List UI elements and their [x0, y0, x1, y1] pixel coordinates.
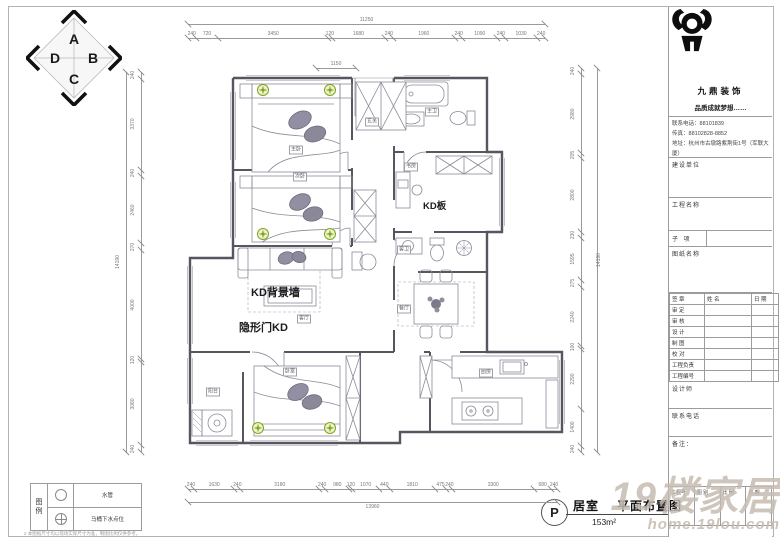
- room-tag: 次卧: [293, 173, 307, 182]
- plan-label: KD背景墙: [251, 284, 300, 300]
- field-project: 工程名称: [669, 198, 772, 231]
- dim-value: 240: [570, 445, 576, 453]
- dim-value: 3080: [130, 398, 136, 409]
- circle-icon: [55, 489, 67, 501]
- dim-value: 1960: [418, 31, 429, 37]
- dim-total: 14190: [596, 253, 602, 267]
- footer-cell: 图 别: [695, 487, 721, 525]
- dim-chain-right: [581, 68, 582, 452]
- room-tag: 卧室: [283, 368, 297, 377]
- sig-row-empty: [752, 316, 779, 327]
- dim-value: 100: [570, 343, 576, 351]
- dim-value: 120: [347, 482, 355, 488]
- sig-header: 日 期: [752, 294, 779, 305]
- sig-row-label: 工程负责: [670, 360, 705, 371]
- sig-row-label: 制 图: [670, 338, 705, 349]
- legend-label: 水管: [74, 491, 141, 499]
- room-tag: 餐厅: [397, 305, 411, 314]
- dim-value: 2800: [570, 189, 576, 200]
- sig-row-label: 审 定: [670, 305, 705, 316]
- logo-icon: [669, 7, 715, 57]
- sig-row-label: 设 计: [670, 327, 705, 338]
- sig-header: 姓 名: [705, 294, 752, 305]
- signature-table: 签 章姓 名日 期审 定审 核设 计制 图校 对工程负责工程编号: [669, 293, 779, 382]
- kitchen: [452, 356, 558, 428]
- plan-label: KD板: [423, 198, 446, 212]
- drawing-sheet: A B C D 九鼎装饰 品质成就梦想…… 联系: [0, 0, 780, 544]
- dim-value: 240: [445, 482, 453, 488]
- dim-value: 440: [380, 482, 388, 488]
- dim-value: 270: [130, 243, 136, 251]
- area-value: 153m²: [592, 517, 616, 527]
- dim-total-line-bottom: [188, 502, 557, 503]
- dim-value: 205: [570, 151, 576, 159]
- field-designer: 设计师: [669, 382, 772, 409]
- dim-value: 475: [436, 482, 444, 488]
- dim-value: 1030: [515, 31, 526, 37]
- dim-total-line-left: [126, 72, 127, 452]
- sig-row-empty: [752, 371, 779, 382]
- sig-header: 签 章: [670, 294, 705, 305]
- sig-row-empty: [752, 349, 779, 360]
- legend-row: 马桶下水点位: [48, 508, 141, 531]
- dim-value: 240: [537, 31, 545, 37]
- sig-row-empty: [705, 338, 752, 349]
- legend-label: 马桶下水点位: [74, 515, 141, 523]
- fax-label: 传真：: [672, 131, 689, 137]
- dim-value: 240: [187, 482, 195, 488]
- phone-value: 88101839: [700, 121, 724, 127]
- drawing-title: 居室平面布置图: [573, 497, 682, 514]
- dim-value: 120: [326, 31, 334, 37]
- room-tag: 主卧: [289, 146, 303, 155]
- sig-row-empty: [705, 360, 752, 371]
- company-contact: 联系电话：88101839 传真：88102828-8852 地址：杭州市古墩路…: [669, 117, 772, 158]
- orientation-compass: A B C D: [26, 10, 122, 106]
- room-tag: 阳台: [206, 388, 220, 397]
- sig-row-empty: [705, 305, 752, 316]
- field-designer-phone: 联系电话: [669, 409, 772, 437]
- dim-value: 720: [203, 31, 211, 37]
- drawing-title-text: 平面布置图: [617, 499, 682, 513]
- socket-point-icon: [325, 85, 336, 96]
- dim-value: 3180: [274, 482, 285, 488]
- compass-letter-a: A: [69, 31, 79, 47]
- plan-label: 隐形门KD: [239, 319, 288, 335]
- socket-point-icon: [258, 229, 269, 240]
- toilet-main: [450, 111, 475, 125]
- dim-value: 240: [550, 482, 558, 488]
- dim-value: 240: [497, 31, 505, 37]
- dim-value: 1810: [407, 482, 418, 488]
- dim-value: 240: [233, 482, 241, 488]
- sig-row-empty: [705, 371, 752, 382]
- socket-point-icon: [253, 423, 264, 434]
- legend-note: 2 本图纸尺寸均以现场实际尺寸为准，制图比例仅供参考。: [24, 531, 140, 537]
- dim-value: 240: [455, 31, 463, 37]
- dim-value: 240: [130, 169, 136, 177]
- washing-machine: [192, 410, 232, 436]
- dim-chain-left: [141, 72, 142, 452]
- company-slogan: 品质成就梦想……: [669, 101, 772, 117]
- field-subitem: 子 项: [669, 231, 772, 247]
- room-tag: 客卫: [397, 246, 411, 255]
- dim-value: 4000: [130, 299, 136, 310]
- dim-value: 1400: [570, 422, 576, 433]
- sig-row-label: 审 核: [670, 316, 705, 327]
- room-tag: 厨房: [479, 369, 493, 378]
- room-tag: 客厅: [297, 315, 311, 324]
- dim-value: 240: [130, 71, 136, 79]
- socket-point-icon: [325, 229, 336, 240]
- circle-cross-icon: [55, 513, 67, 525]
- dim-value: 1680: [353, 31, 364, 37]
- field-drawing-name: 图纸名称: [669, 247, 772, 293]
- sig-row-empty: [752, 360, 779, 371]
- dim-value: 120: [130, 356, 136, 364]
- dim-value: 240: [130, 445, 136, 453]
- title-block-footer: 工程号图 别比 例日 期: [669, 487, 772, 526]
- dim-value: 1090: [474, 31, 485, 37]
- title-block: 九鼎装饰 品质成就梦想…… 联系电话：88101839 传真：88102828-…: [668, 7, 772, 537]
- bathtub: [400, 82, 448, 106]
- footer-cell: 日 期: [746, 487, 772, 525]
- dim-value: 2980: [570, 108, 576, 119]
- company-logo: [669, 7, 772, 85]
- dim-value: 3450: [268, 31, 279, 37]
- dim-value: 1070: [360, 482, 371, 488]
- footer-cell: 比 例: [721, 487, 747, 525]
- dim-total-line-top: [188, 24, 545, 25]
- dining-table: [414, 270, 458, 338]
- sig-row-empty: [705, 316, 752, 327]
- dim-value: 240: [188, 31, 196, 37]
- legend-row: 水管: [48, 484, 141, 508]
- sig-row-label: 校 对: [670, 349, 705, 360]
- sig-row-empty: [752, 327, 779, 338]
- socket-point-icon: [325, 423, 336, 434]
- sig-row-label: 工程编号: [670, 371, 705, 382]
- compass-letter-b: B: [88, 50, 98, 66]
- dim-chain-top-entry: [316, 68, 356, 69]
- legend-table: 图例 水管马桶下水点位: [30, 483, 142, 531]
- dim-value: 240: [318, 482, 326, 488]
- bed-master: [240, 84, 352, 172]
- dim-value: 240: [570, 67, 576, 75]
- dim-value: 2460: [130, 204, 136, 215]
- wardrobes: [346, 82, 492, 440]
- sig-row-empty: [705, 327, 752, 338]
- sig-row-empty: [705, 349, 752, 360]
- dim-value: 230: [570, 231, 576, 239]
- dim-value: 2290: [570, 373, 576, 384]
- fax-value: 88102828-8852: [689, 131, 728, 137]
- room-tag: 主卫: [425, 108, 439, 117]
- dim-chain-bottom: [188, 489, 557, 490]
- dim-value: 980: [333, 482, 341, 488]
- dim-value: 1630: [209, 482, 220, 488]
- dim-value: 3370: [130, 119, 136, 130]
- room-tag: 书房: [404, 163, 418, 172]
- dim-value: 3300: [488, 482, 499, 488]
- sig-row-empty: [752, 338, 779, 349]
- dim-value: 275: [570, 279, 576, 287]
- dim-total: 13960: [366, 504, 380, 510]
- dim-value: 240: [385, 31, 393, 37]
- dim-total: 11250: [360, 17, 374, 23]
- dim-total: 14190: [115, 255, 121, 269]
- desk: [396, 172, 422, 208]
- dim-value: 1150: [331, 61, 342, 67]
- drawing-code-circle: P: [541, 499, 568, 526]
- sig-row-empty: [752, 305, 779, 316]
- address-label: 地址：: [672, 141, 689, 147]
- field-owner: 建设单位: [669, 158, 772, 198]
- dim-value: 2240: [570, 311, 576, 322]
- compass-letter-d: D: [50, 50, 60, 66]
- dim-chain-top: [188, 38, 545, 39]
- field-notes: 备注：: [669, 437, 772, 487]
- room-label: 居室: [573, 499, 599, 513]
- company-name: 九鼎装饰: [669, 85, 772, 97]
- furniture: [192, 82, 558, 436]
- phone-label: 联系电话：: [672, 121, 700, 127]
- dim-value: 1595: [570, 253, 576, 264]
- room-tag: 玄关: [365, 118, 379, 127]
- title-underline: [566, 514, 668, 515]
- socket-point-icon: [258, 85, 269, 96]
- legend-title: 图例: [31, 484, 48, 530]
- compass-letter-c: C: [69, 71, 79, 87]
- dim-value: 680: [538, 482, 546, 488]
